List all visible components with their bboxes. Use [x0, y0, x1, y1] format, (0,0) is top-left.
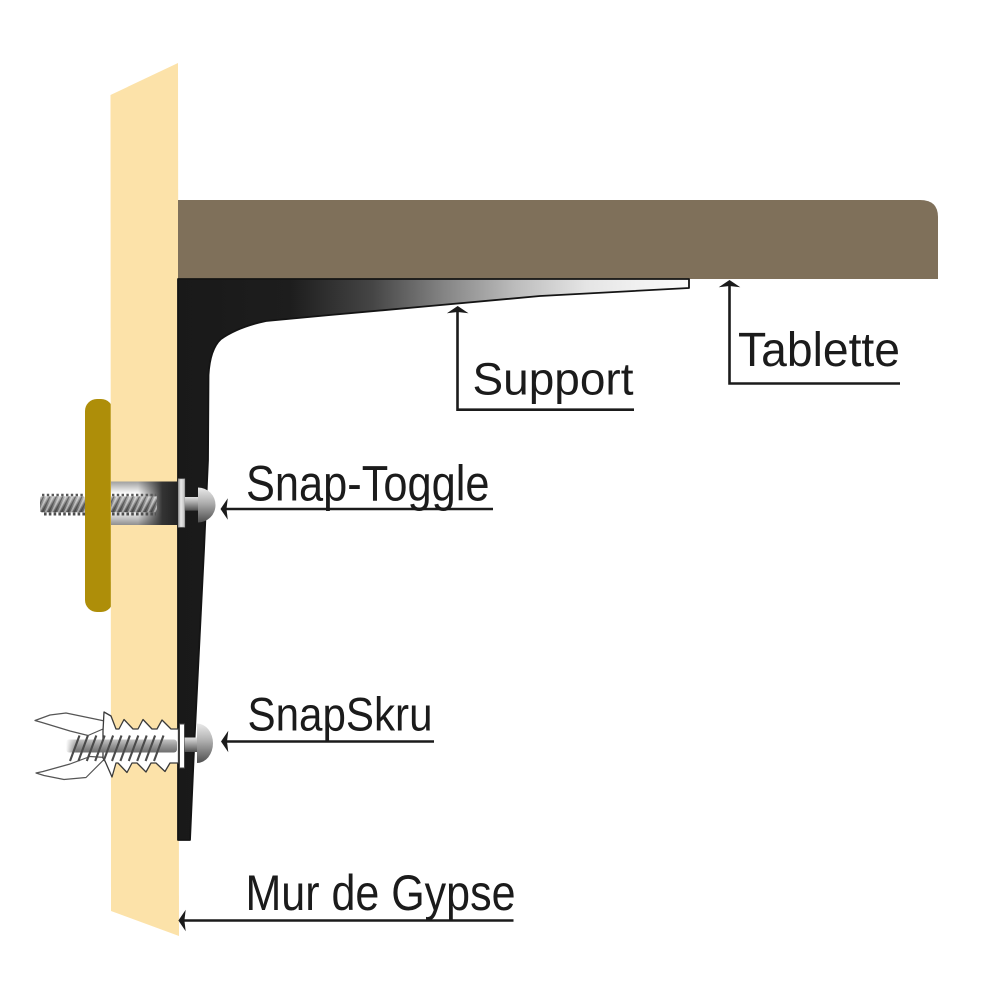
svg-text:SnapSkru: SnapSkru — [248, 688, 433, 741]
svg-text:Support: Support — [473, 354, 634, 405]
svg-text:Snap-Toggle: Snap-Toggle — [246, 456, 490, 512]
svg-text:Tablette: Tablette — [738, 324, 900, 377]
svg-text:Mur de Gypse: Mur de Gypse — [246, 865, 516, 921]
